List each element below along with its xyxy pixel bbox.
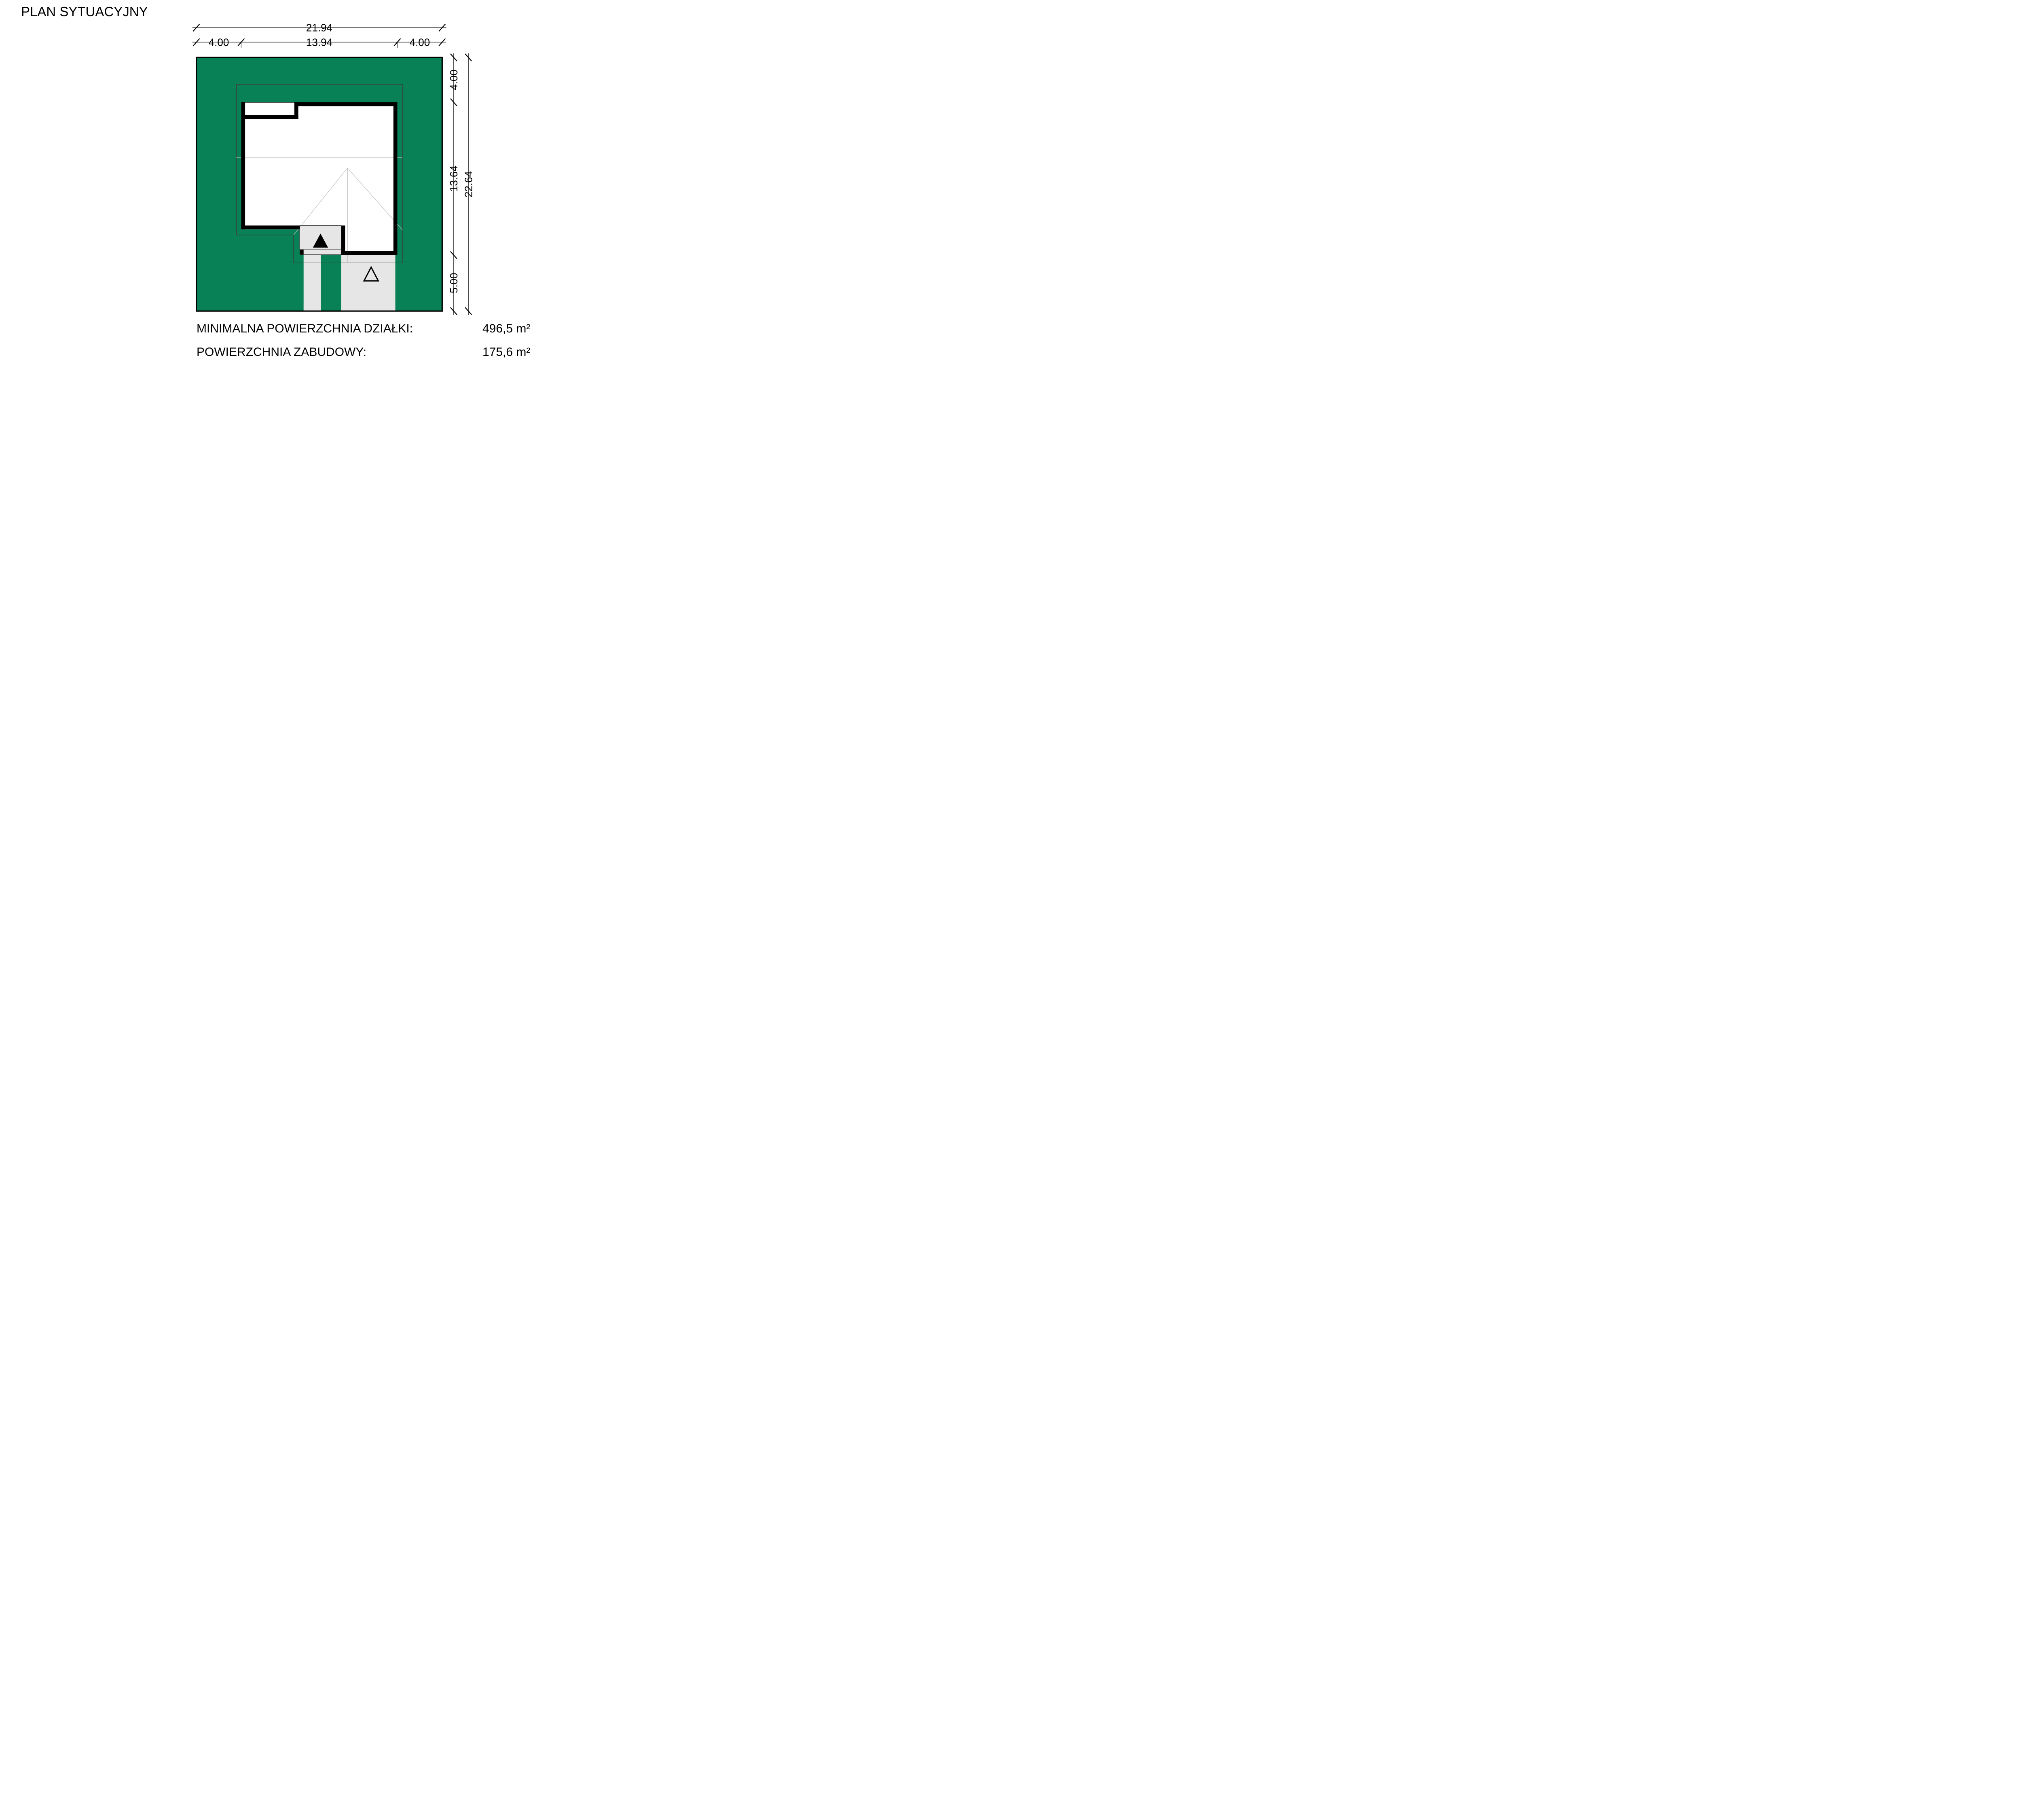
wall-main-bottom (241, 226, 300, 230)
stairs (300, 250, 341, 254)
dim-label: 4.00 (448, 70, 460, 90)
wall-left (241, 102, 245, 229)
wall-right (393, 102, 398, 255)
site-plan-page: 21.944.0013.944.004.0013.645.0022.64 PLA… (0, 0, 647, 364)
wall-top (294, 102, 398, 106)
legend-label-min-plot-area: MINIMALNA POWIERZCHNIA DZIAŁKI: (197, 322, 413, 336)
dim-label: 13.64 (448, 165, 460, 192)
dim-label: 4.00 (209, 36, 229, 48)
wall-notch-bottom (241, 115, 298, 119)
wall-garage-bottom (345, 251, 397, 255)
garage-block (341, 226, 398, 255)
driveway (341, 255, 396, 311)
dim-label: 5.00 (448, 273, 460, 294)
house-body (241, 102, 397, 229)
stairs-landing-square (300, 250, 304, 254)
wall-notch-right (294, 102, 298, 119)
site-plan-drawing: 21.944.0013.944.004.0013.645.0022.64 (0, 0, 647, 364)
dim-label: 13.94 (306, 36, 332, 48)
page-title: PLAN SYTUACYJNY (21, 4, 148, 19)
legend-value-min-plot-area: 496,5 m² (482, 322, 530, 336)
legend-label-built-area: POWIERZCHNIA ZABUDOWY: (197, 345, 366, 359)
wall-terrace-right (341, 226, 345, 255)
legend-value-built-area: 175,6 m² (482, 345, 530, 359)
dim-label: 22.64 (462, 171, 474, 197)
dim-label: 21.94 (306, 21, 332, 34)
dim-label: 4.00 (410, 36, 430, 48)
